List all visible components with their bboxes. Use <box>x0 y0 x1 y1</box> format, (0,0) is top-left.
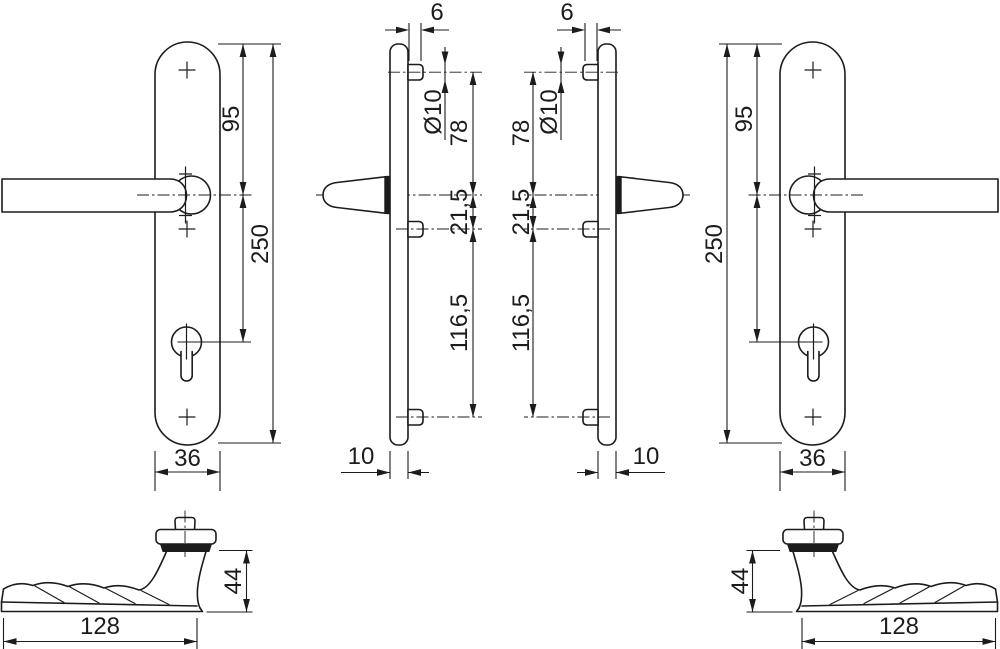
dim-pin-protrusion-left: 6 <box>430 0 443 26</box>
dim-pin-protrusion-right: 6 <box>560 0 573 26</box>
dim-screw-spacing-right: 116,5 <box>508 294 535 352</box>
dim-plate-width-left: 36 <box>174 445 201 472</box>
cap-skirt <box>161 544 212 552</box>
lever-neck-profile <box>323 177 388 214</box>
grip-tip-edge <box>2 589 4 602</box>
dim-handle-height-left: 44 <box>220 568 247 595</box>
arrowheads <box>4 551 250 645</box>
dim-plate-length-left: 250 <box>247 224 274 264</box>
handle-profile-right <box>747 511 998 649</box>
handle-cap <box>156 530 216 545</box>
dim-plate-thickness-right: 10 <box>633 443 660 470</box>
side-view-art <box>316 23 482 479</box>
backplate-profile <box>390 44 408 445</box>
finger-grooves <box>35 586 169 605</box>
dim-handle-to-screw-left: 21,5 <box>446 189 473 236</box>
dim-top-to-handle-left: 95 <box>218 106 245 133</box>
dim-plate-thickness-left: 10 <box>348 443 375 470</box>
handle-profile-art <box>2 511 253 649</box>
dim-pin-to-handle-right: 78 <box>508 120 535 147</box>
dim-top-to-handle-right: 95 <box>731 106 758 133</box>
dim-handle-height-right: 44 <box>727 568 754 595</box>
dim-handle-length-right: 128 <box>879 613 919 640</box>
dim-handle-to-screw-right: 21,5 <box>508 189 535 236</box>
technical-drawing-page: 95 250 36 6 Ø10 78 21,5 116,5 10 6 Ø10 7… <box>0 0 1000 649</box>
dim-plate-length-right: 250 <box>701 224 728 264</box>
lever-plate-joint <box>385 177 390 214</box>
front-view-right <box>719 42 998 491</box>
neck-right-edge <box>197 552 206 609</box>
dim-handle-length-left: 128 <box>80 613 120 640</box>
dim-plate-width-right: 36 <box>799 445 826 472</box>
dim-pin-diameter-right: Ø10 <box>536 89 563 134</box>
dim-screw-spacing-left: 116,5 <box>446 294 473 352</box>
dim-pin-to-handle-left: 78 <box>446 120 473 147</box>
backplate-outline <box>155 42 220 445</box>
dim-pin-diameter-left: Ø10 <box>420 89 447 134</box>
grip-top-wavy-edge <box>4 552 167 591</box>
door-handle-technical-drawing: 95 250 36 6 Ø10 78 21,5 116,5 10 6 Ø10 7… <box>0 0 1000 649</box>
lever-bar <box>2 179 187 212</box>
